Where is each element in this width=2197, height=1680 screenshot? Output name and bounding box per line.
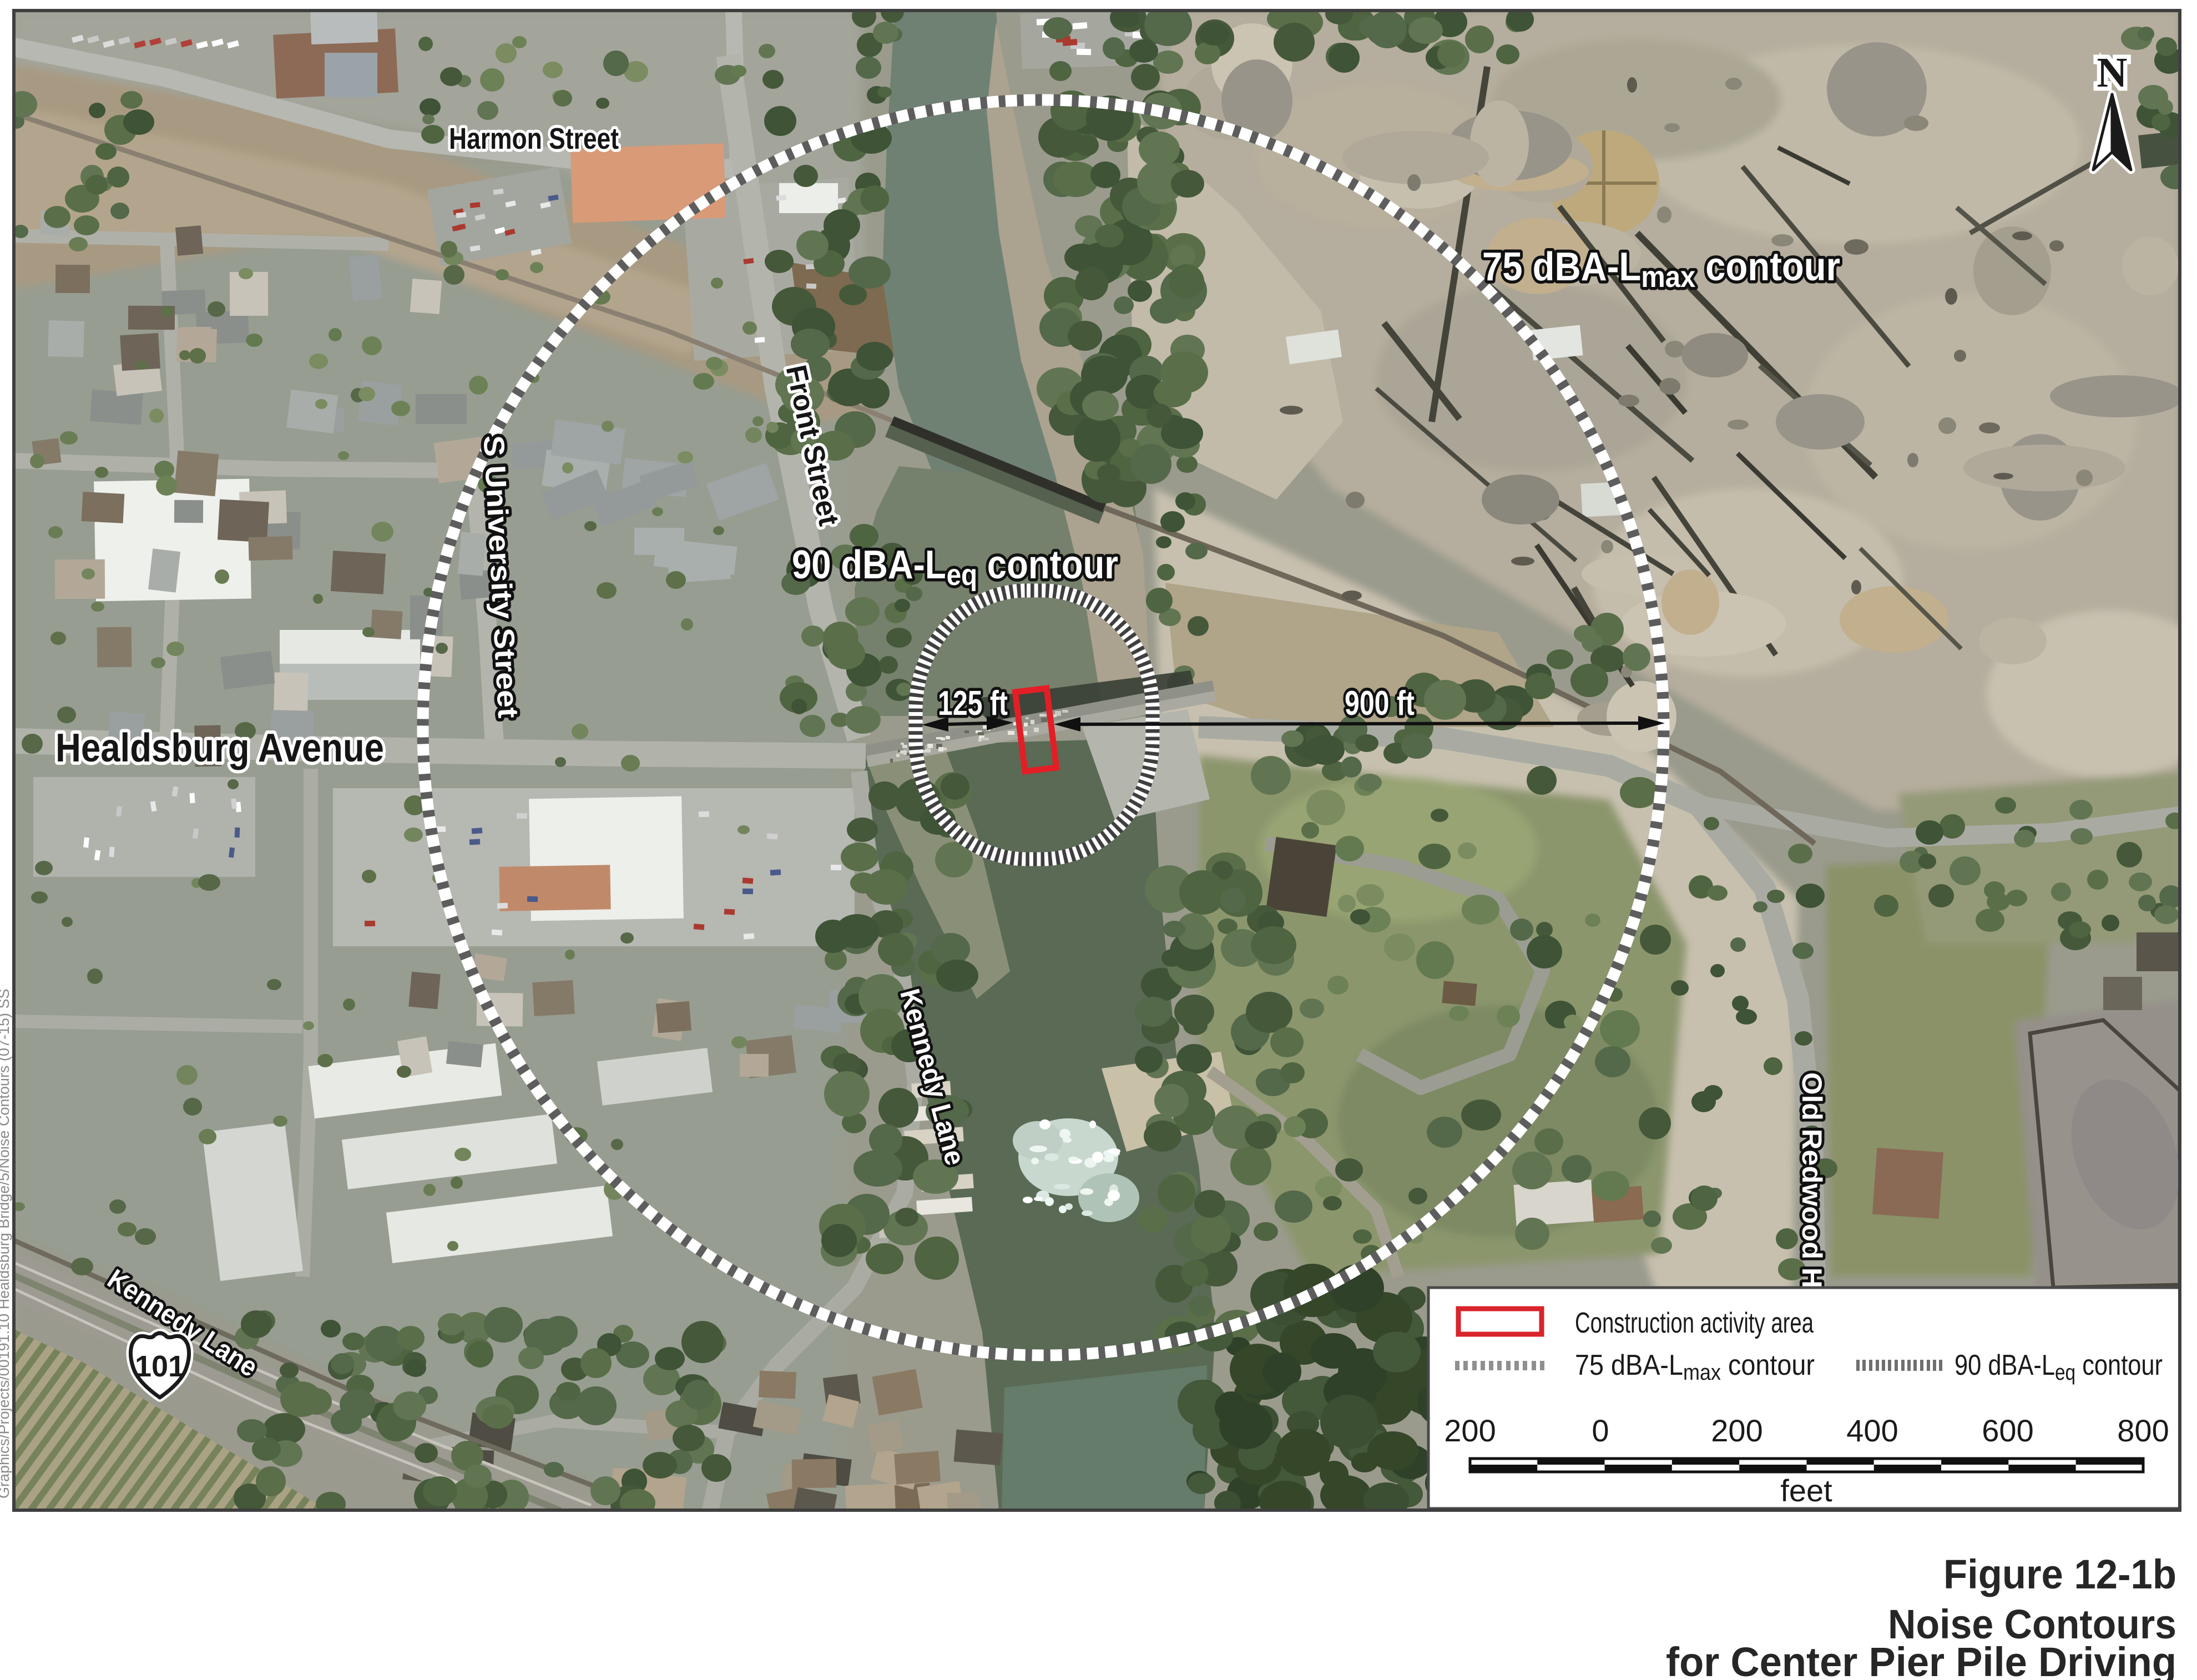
svg-text:Graphics/Projects/00191.10 Hea: Graphics/Projects/00191.10 Healdsburg Br… xyxy=(0,989,12,1499)
svg-text:200: 200 xyxy=(1711,1413,1762,1448)
svg-text:125 ft: 125 ft xyxy=(938,684,1008,723)
svg-text:400: 400 xyxy=(1846,1413,1898,1448)
svg-text:N: N xyxy=(2097,49,2128,96)
svg-text:800: 800 xyxy=(2117,1413,2169,1448)
svg-text:Healdsburg Avenue: Healdsburg Avenue xyxy=(55,726,384,770)
svg-text:for Center Pier Pile Driving: for Center Pier Pile Driving xyxy=(1666,1639,2176,1680)
svg-text:Harmon Street: Harmon Street xyxy=(449,122,619,155)
svg-text:feet: feet xyxy=(1780,1473,1832,1508)
svg-text:101: 101 xyxy=(135,1350,185,1383)
svg-text:Old Redwood Hig: Old Redwood Hig xyxy=(1796,1072,1827,1314)
svg-text:600: 600 xyxy=(1982,1413,2033,1448)
svg-text:200: 200 xyxy=(1444,1413,1496,1448)
svg-text:Construction activity area: Construction activity area xyxy=(1575,1307,1814,1339)
svg-text:Figure 12-1b: Figure 12-1b xyxy=(1943,1551,2176,1597)
svg-text:900 ft: 900 ft xyxy=(1345,684,1415,723)
svg-text:0: 0 xyxy=(1592,1413,1609,1448)
